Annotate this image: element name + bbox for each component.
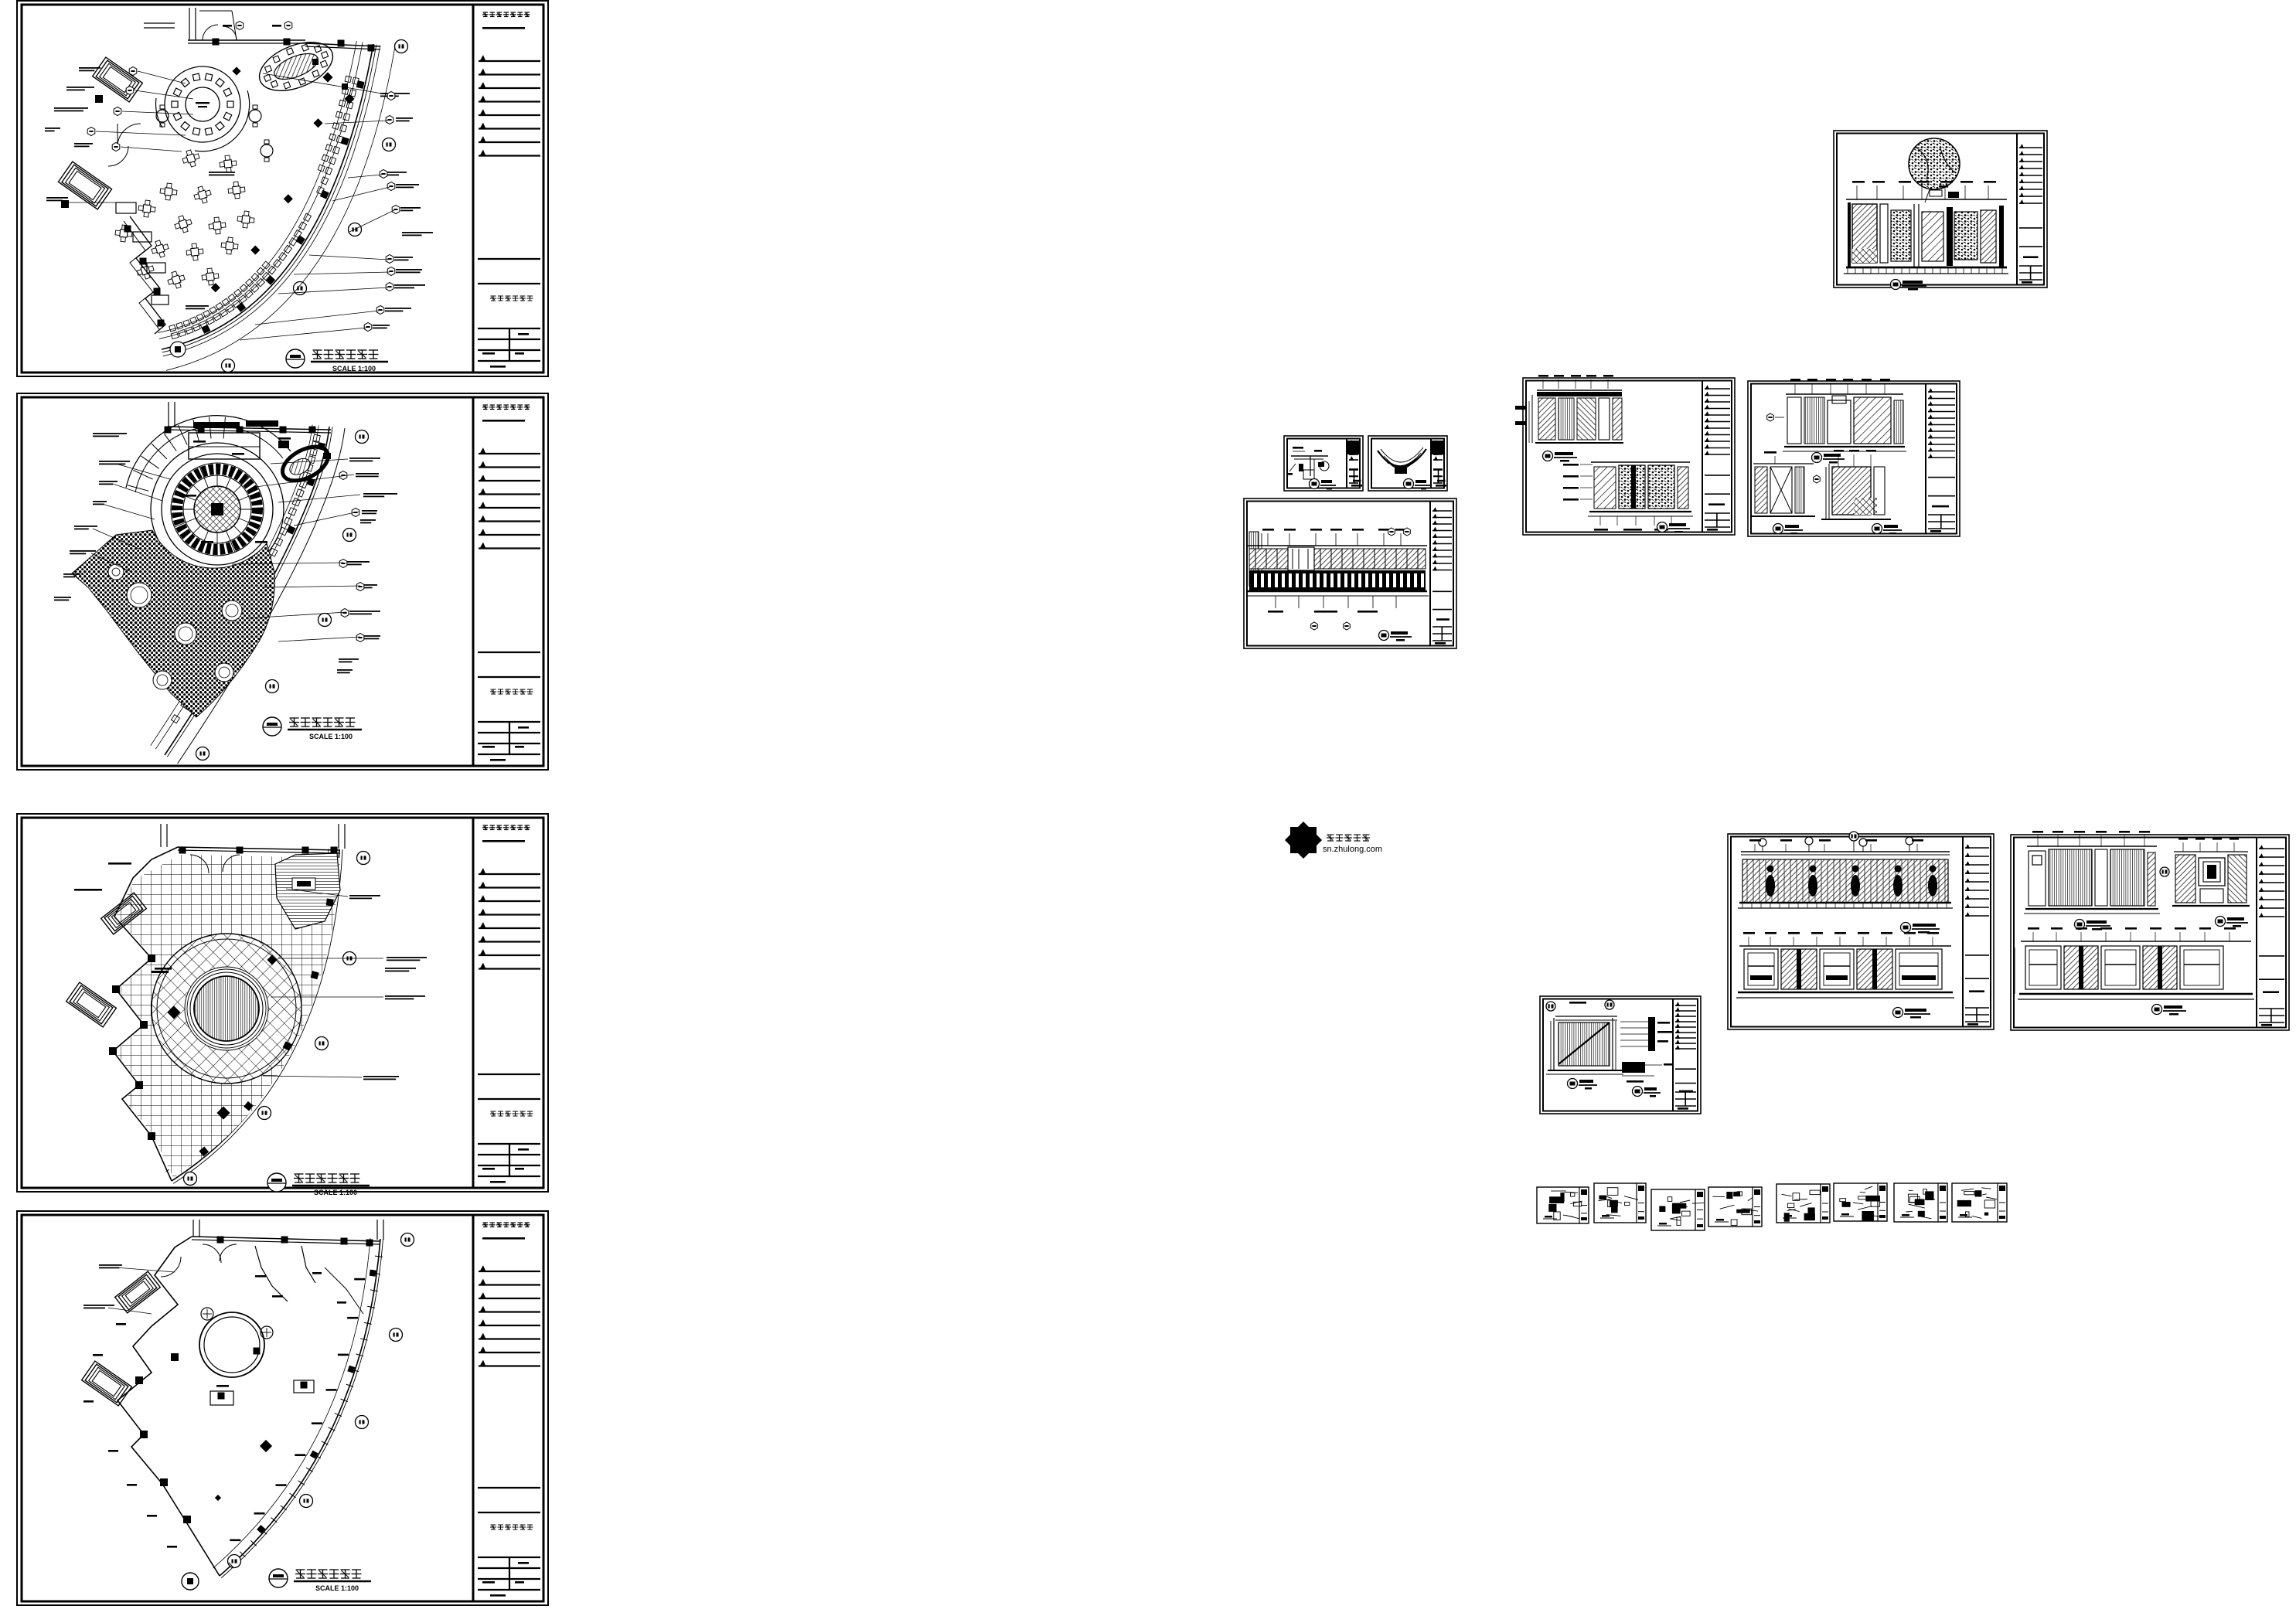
svg-text:SCALE 1:100: SCALE 1:100	[315, 1584, 359, 1592]
svg-text:SCALE 1:100: SCALE 1:100	[309, 733, 353, 740]
svg-text:SCALE 1:100: SCALE 1:100	[332, 365, 376, 373]
svg-text:SCALE 1:100: SCALE 1:100	[314, 1189, 357, 1196]
svg-text:sn.zhulong.com: sn.zhulong.com	[1323, 845, 1382, 854]
